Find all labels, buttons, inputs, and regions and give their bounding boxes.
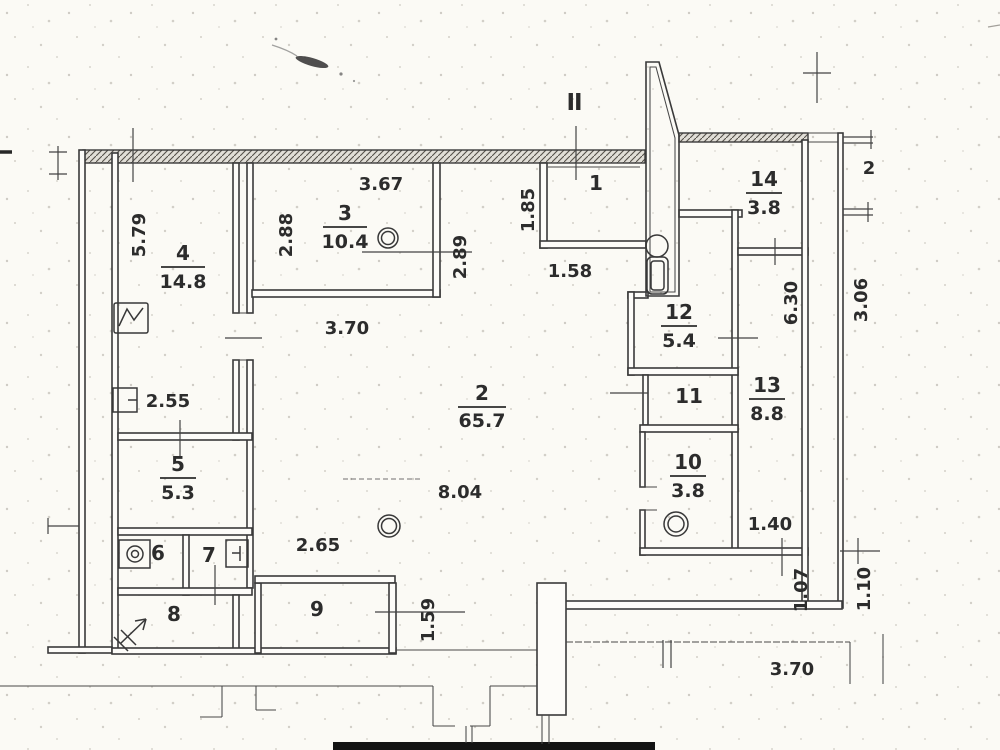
svg-text:12: 12 [665,300,693,324]
dimension-label: 5.79 [129,213,150,257]
svg-text:5: 5 [171,452,185,476]
room-1-number: 1 [589,171,603,195]
section-mark: II [566,90,581,116]
room-6-number: 6 [151,541,165,565]
svg-text:65.7: 65.7 [459,410,506,432]
dimension-label: 1.59 [418,598,439,642]
svg-text:2: 2 [475,381,489,405]
dimension-label-partial: 2 [863,158,876,179]
room-7-number: 7 [202,543,216,567]
svg-text:5.4: 5.4 [662,330,696,352]
dimension-label: 1.58 [548,261,592,282]
room-10-label: 10 3.8 [670,450,706,502]
dimension-label: 2.65 [296,535,340,556]
svg-text:3.8: 3.8 [671,480,705,502]
scanned-floor-plan: II 1 2 65.7 3 10.4 4 14.8 5 5.3 6 7 8 9 … [0,0,1000,750]
dimension-label: 3.67 [359,174,403,195]
svg-text:4: 4 [176,241,190,265]
dimension-label: 2.89 [450,235,471,279]
room-13-label: 13 8.8 [749,373,785,425]
dimension-label: 8.04 [438,482,482,503]
svg-text:8.8: 8.8 [750,403,784,425]
dimension-label: 1.40 [748,514,792,535]
svg-text:14.8: 14.8 [160,271,207,293]
room-12-label: 12 5.4 [661,300,697,352]
dimension-label: 6.30 [781,281,802,325]
dimension-label: 3.70 [325,318,369,339]
room-9-number: 9 [310,597,324,621]
dimension-label: 2.55 [146,391,190,412]
room-11-number: 11 [675,384,703,408]
svg-text:5.3: 5.3 [161,482,195,504]
svg-text:10: 10 [674,450,702,474]
scan-noise-texture [0,0,1000,750]
dimension-label: 3.06 [851,278,872,322]
dimension-label: 1.85 [518,188,539,232]
dimension-label: 3.70 [770,659,814,680]
floor-plan-canvas: II 1 2 65.7 3 10.4 4 14.8 5 5.3 6 7 8 9 … [0,0,1000,750]
room-14-label: 14 3.8 [746,167,782,219]
dimension-label: 2.88 [276,213,297,257]
room-8-number: 8 [167,602,181,626]
dimension-label: 1.07 [791,568,812,612]
dimension-label: 1.10 [854,567,875,611]
svg-text:14: 14 [750,167,778,191]
svg-text:3: 3 [338,201,352,225]
svg-text:13: 13 [753,373,781,397]
svg-text:3.8: 3.8 [747,197,781,219]
svg-text:10.4: 10.4 [322,231,369,253]
